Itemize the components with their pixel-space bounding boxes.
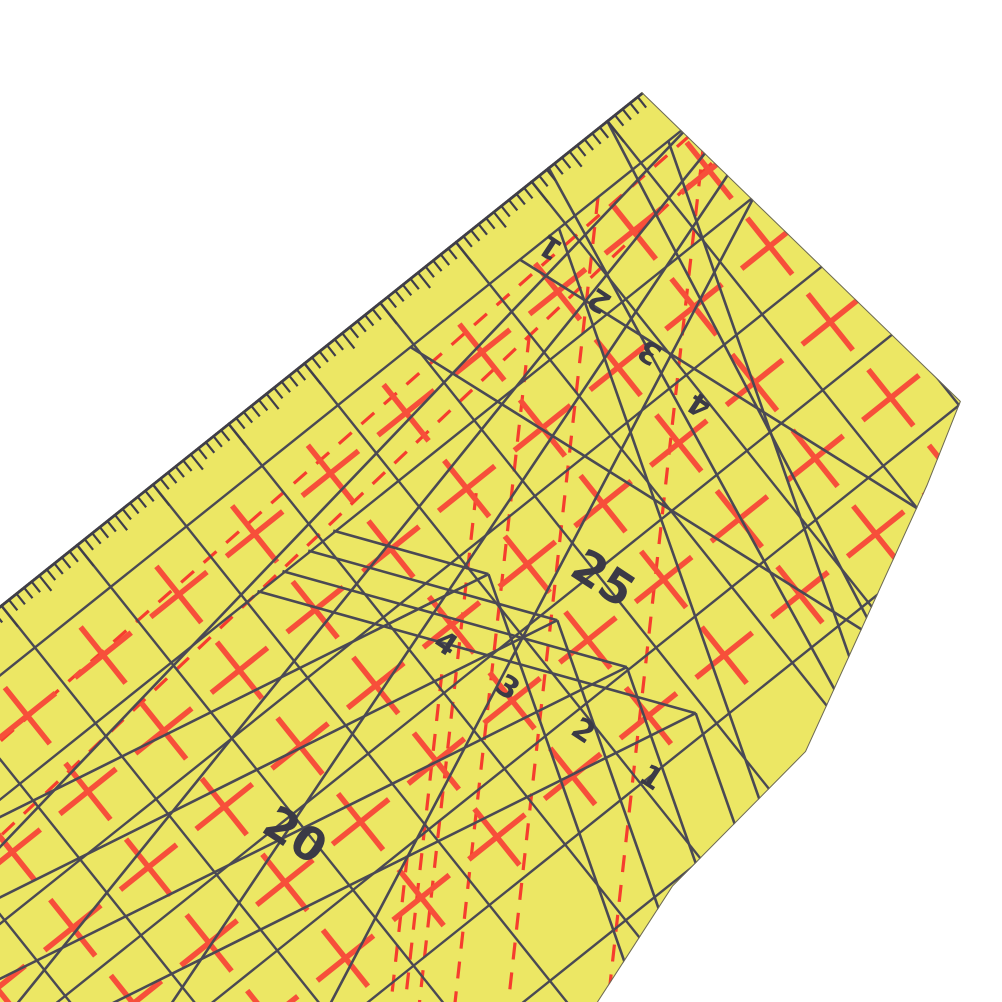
ruler-markings: 123443212520 [0,29,1002,1002]
red-cross-mark [929,445,974,501]
quilting-ruler: 123443212520 [0,29,1002,1002]
ruler-body [0,29,1002,1002]
photo-background: 123443212520 [0,0,1002,1002]
